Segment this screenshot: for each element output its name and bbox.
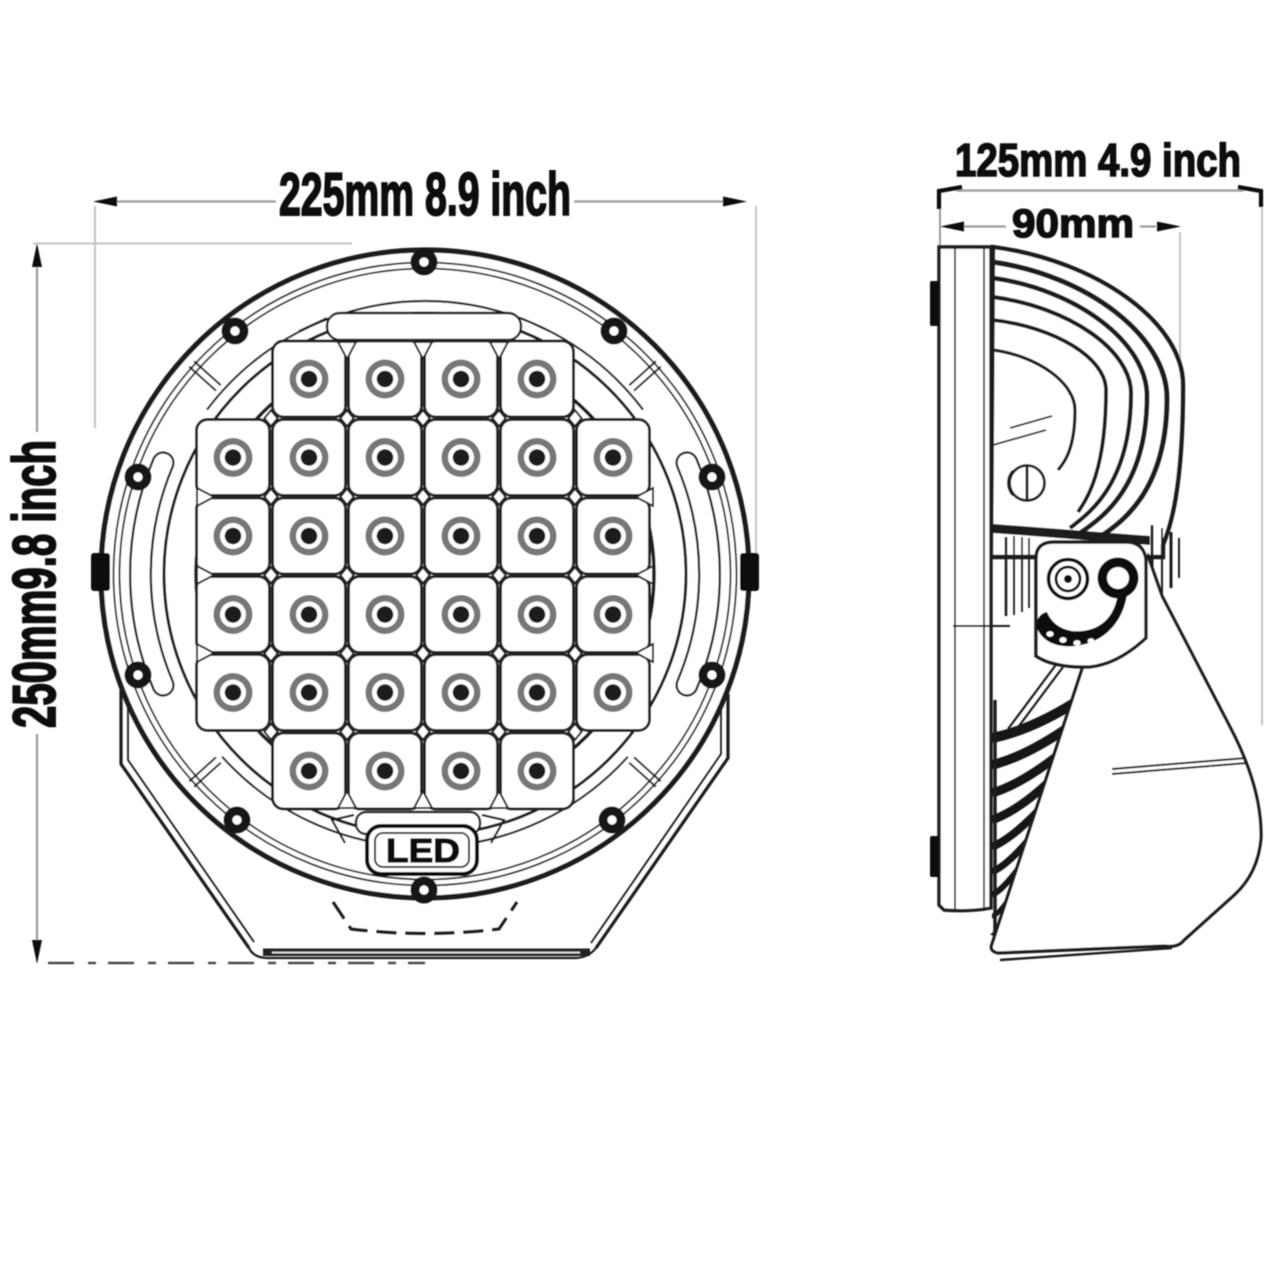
- svg-text:LED: LED: [386, 832, 460, 869]
- svg-text:90mm: 90mm: [1012, 202, 1134, 246]
- svg-text:250mm9.8 inch: 250mm9.8 inch: [1, 440, 68, 728]
- svg-text:125mm 4.9 inch: 125mm 4.9 inch: [955, 134, 1241, 186]
- svg-text:225mm 8.9 inch: 225mm 8.9 inch: [279, 161, 571, 228]
